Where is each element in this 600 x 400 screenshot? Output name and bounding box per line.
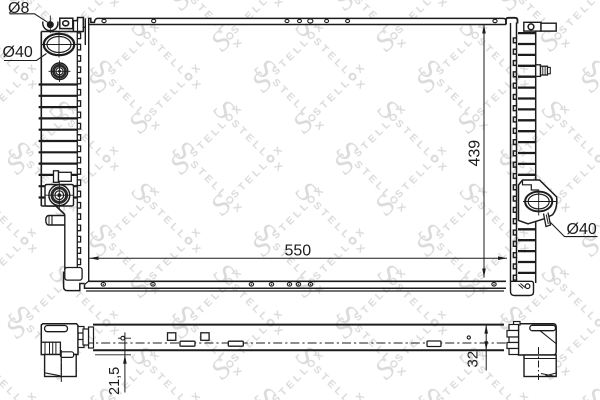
svg-text:439: 439 [467, 140, 484, 167]
svg-text:32: 32 [465, 351, 482, 368]
svg-text:21,5: 21,5 [107, 367, 123, 395]
svg-text:Ø40: Ø40 [3, 44, 33, 61]
svg-text:Ø40: Ø40 [567, 221, 597, 238]
svg-text:550: 550 [285, 243, 312, 260]
